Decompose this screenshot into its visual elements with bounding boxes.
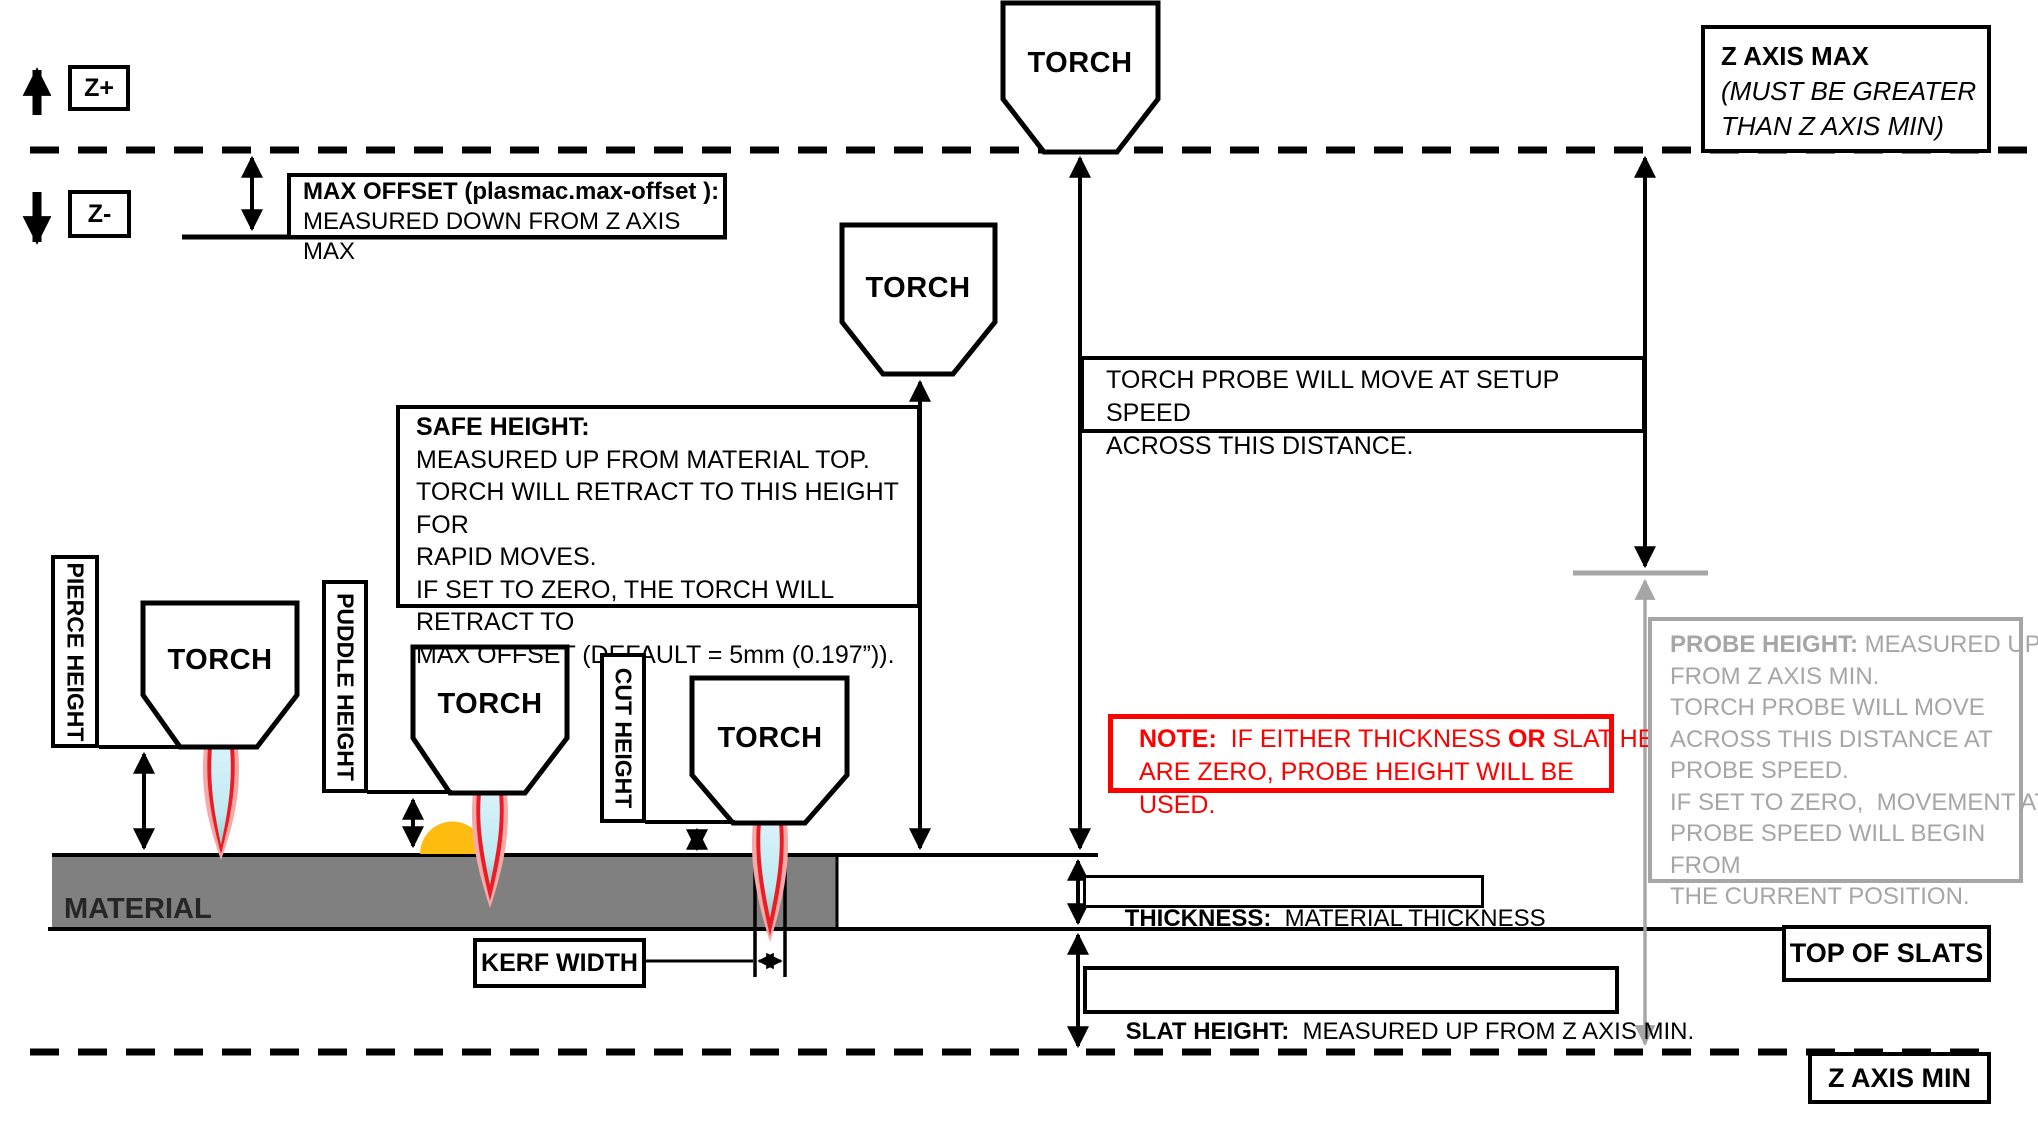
thickness-text: MATERIAL THICKNESS: [1271, 905, 1545, 932]
top-of-slats-box: TOP OF SLATS: [1782, 925, 1991, 982]
z-axis-max-line2: (MUST BE GREATER: [1721, 74, 1987, 109]
slat-height-title: SLAT HEIGHT:: [1126, 1018, 1290, 1045]
safe-height-line: MAX OFFSET (DEFAULT = 5mm (0.197”)).: [416, 639, 917, 672]
pierce-flame-icon: [203, 747, 239, 860]
safe-height-line: MEASURED UP FROM MATERIAL TOP.: [416, 444, 917, 477]
probe-height-line: IF SET TO ZERO, MOVEMENT AT: [1670, 787, 2019, 819]
top-of-slats-label: TOP OF SLATS: [1790, 938, 1984, 969]
note-box: NOTE: IF EITHER THICKNESS OR SLAT HEIGHT…: [1108, 714, 1614, 793]
puddle-height-label-box: PUDDLE HEIGHT: [322, 580, 368, 793]
diagram-canvas: [0, 0, 2038, 1145]
plasmac-heights-diagram: Z+ Z- MAX OFFSET (plasmac.max-offset ): …: [0, 0, 2038, 1145]
z-minus-box: Z-: [68, 190, 131, 238]
cut-height-label: CUT HEIGHT: [610, 668, 637, 809]
max-offset-box: MAX OFFSET (plasmac.max-offset ): MEASUR…: [287, 173, 727, 239]
probe-height-line1: PROBE HEIGHT: MEASURED UP: [1670, 629, 2019, 661]
z-plus-label: Z+: [84, 74, 114, 103]
safe-height-line: RAPID MOVES.: [416, 541, 917, 574]
slat-height-text: MEASURED UP FROM Z AXIS MIN.: [1289, 1018, 1694, 1045]
torch-cut-label: TORCH: [700, 722, 840, 755]
note-bold-or: OR: [1508, 725, 1546, 753]
safe-height-line: TORCH WILL RETRACT TO THIS HEIGHT FOR: [416, 476, 917, 541]
pierce-height-label-box: PIERCE HEIGHT: [51, 555, 99, 748]
pierce-height-label: PIERCE HEIGHT: [62, 562, 89, 741]
cut-height-label-box: CUT HEIGHT: [600, 653, 646, 823]
z-axis-min-box: Z AXIS MIN: [1808, 1052, 1991, 1104]
puddle-height-label: PUDDLE HEIGHT: [332, 593, 359, 781]
thickness-title: THICKNESS:: [1125, 905, 1272, 932]
torch-probe-line1: TORCH PROBE WILL MOVE AT SETUP SPEED: [1106, 364, 1642, 430]
torch-pierce-label: TORCH: [150, 644, 290, 677]
note-text1: IF EITHER THICKNESS: [1217, 725, 1508, 753]
probe-height-line: PROBE SPEED.: [1670, 755, 2019, 787]
probe-height-line: PROBE SPEED WILL BEGIN FROM: [1670, 818, 2019, 881]
z-axis-min-label: Z AXIS MIN: [1828, 1063, 1971, 1094]
probe-height-line: THE CURRENT POSITION.: [1670, 881, 2019, 913]
torch-safe-label: TORCH: [848, 272, 988, 305]
probe-height-line: ACROSS THIS DISTANCE AT: [1670, 724, 2019, 756]
slat-height-box: SLAT HEIGHT: MEASURED UP FROM Z AXIS MIN…: [1083, 966, 1619, 1014]
max-offset-line2: MEASURED DOWN FROM Z AXIS MAX: [303, 207, 723, 267]
note-bold-prefix: NOTE:: [1139, 725, 1217, 753]
probe-height-rest: MEASURED UP: [1858, 631, 2038, 658]
max-offset-line1: MAX OFFSET (plasmac.max-offset ):: [303, 177, 723, 207]
z-minus-label: Z-: [88, 200, 112, 229]
safe-height-title: SAFE HEIGHT:: [416, 411, 917, 444]
z-axis-max-line3: THAN Z AXIS MIN): [1721, 109, 1987, 144]
probe-height-line: FROM Z AXIS MIN.: [1670, 661, 2019, 693]
note-line1: NOTE: IF EITHER THICKNESS OR SLAT HEIGHT: [1139, 723, 1609, 756]
probe-height-title: PROBE HEIGHT:: [1670, 631, 1858, 658]
torch-top-label: TORCH: [1010, 47, 1150, 80]
torch-probe-line2: ACROSS THIS DISTANCE.: [1106, 430, 1642, 463]
safe-height-box: SAFE HEIGHT: MEASURED UP FROM MATERIAL T…: [396, 405, 921, 608]
kerf-width-box: KERF WIDTH: [473, 938, 646, 988]
note-line2: ARE ZERO, PROBE HEIGHT WILL BE USED.: [1139, 756, 1609, 822]
probe-height-line: TORCH PROBE WILL MOVE: [1670, 692, 2019, 724]
material-label: MATERIAL: [64, 893, 212, 926]
probe-height-box: PROBE HEIGHT: MEASURED UP FROM Z AXIS MI…: [1648, 617, 2023, 883]
torch-puddle-label: TORCH: [420, 688, 560, 721]
kerf-width-label: KERF WIDTH: [481, 949, 638, 978]
safe-height-line: IF SET TO ZERO, THE TORCH WILL RETRACT T…: [416, 574, 917, 639]
z-axis-max-box: Z AXIS MAX (MUST BE GREATER THAN Z AXIS …: [1701, 25, 1991, 153]
z-plus-box: Z+: [68, 65, 130, 111]
torch-probe-box: TORCH PROBE WILL MOVE AT SETUP SPEED ACR…: [1080, 356, 1646, 433]
thickness-box: THICKNESS: MATERIAL THICKNESS: [1083, 875, 1484, 908]
z-axis-max-title: Z AXIS MAX: [1721, 39, 1987, 74]
